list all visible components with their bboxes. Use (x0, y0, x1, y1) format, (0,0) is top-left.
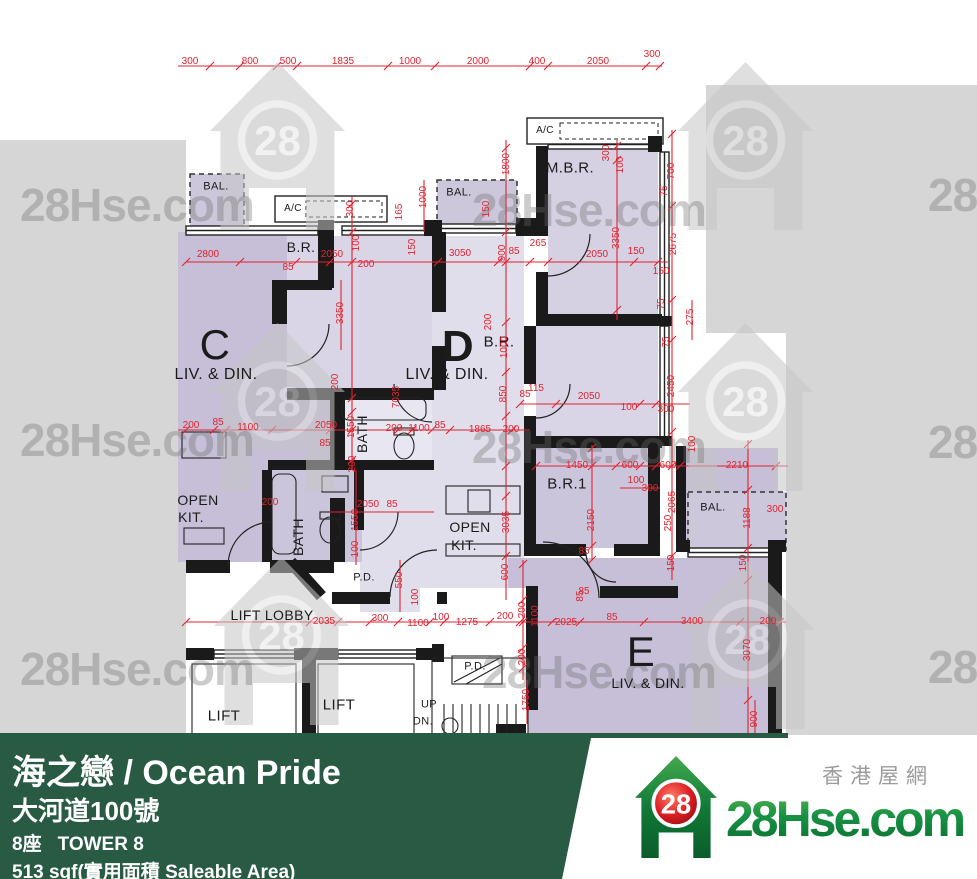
brand-house-icon: 28 (626, 756, 726, 858)
estate-address: 大河道100號 (12, 791, 159, 828)
watermark-house-icon (210, 62, 345, 230)
brand-tagline-cn: 香港屋網 (822, 760, 934, 790)
brand-28-number: 28 (661, 788, 691, 819)
tower-en: TOWER 8 (58, 834, 144, 855)
brand-logo-block: 28 香港屋網 28Hse.com (598, 742, 977, 879)
watermark-house-icon (210, 323, 345, 491)
estate-title: 海之戀 / Ocean Pride (12, 745, 341, 794)
tower-line: 8座TOWER 8 (12, 829, 144, 856)
watermark-house-icon (214, 557, 349, 725)
watermark-house-icon (680, 561, 815, 729)
saleable-area: 513 sqf(實用面積 Saleable Area) (12, 857, 295, 879)
tower-cn: 8座 (12, 834, 42, 855)
brand-site-name: 28Hse.com (726, 790, 963, 848)
floorplan-page: 28 28Hse.com28Hse.com28Hse.com28Hse.com2… (0, 0, 977, 879)
watermark-house-icon (678, 62, 813, 230)
watermark-house-icon (678, 323, 813, 491)
